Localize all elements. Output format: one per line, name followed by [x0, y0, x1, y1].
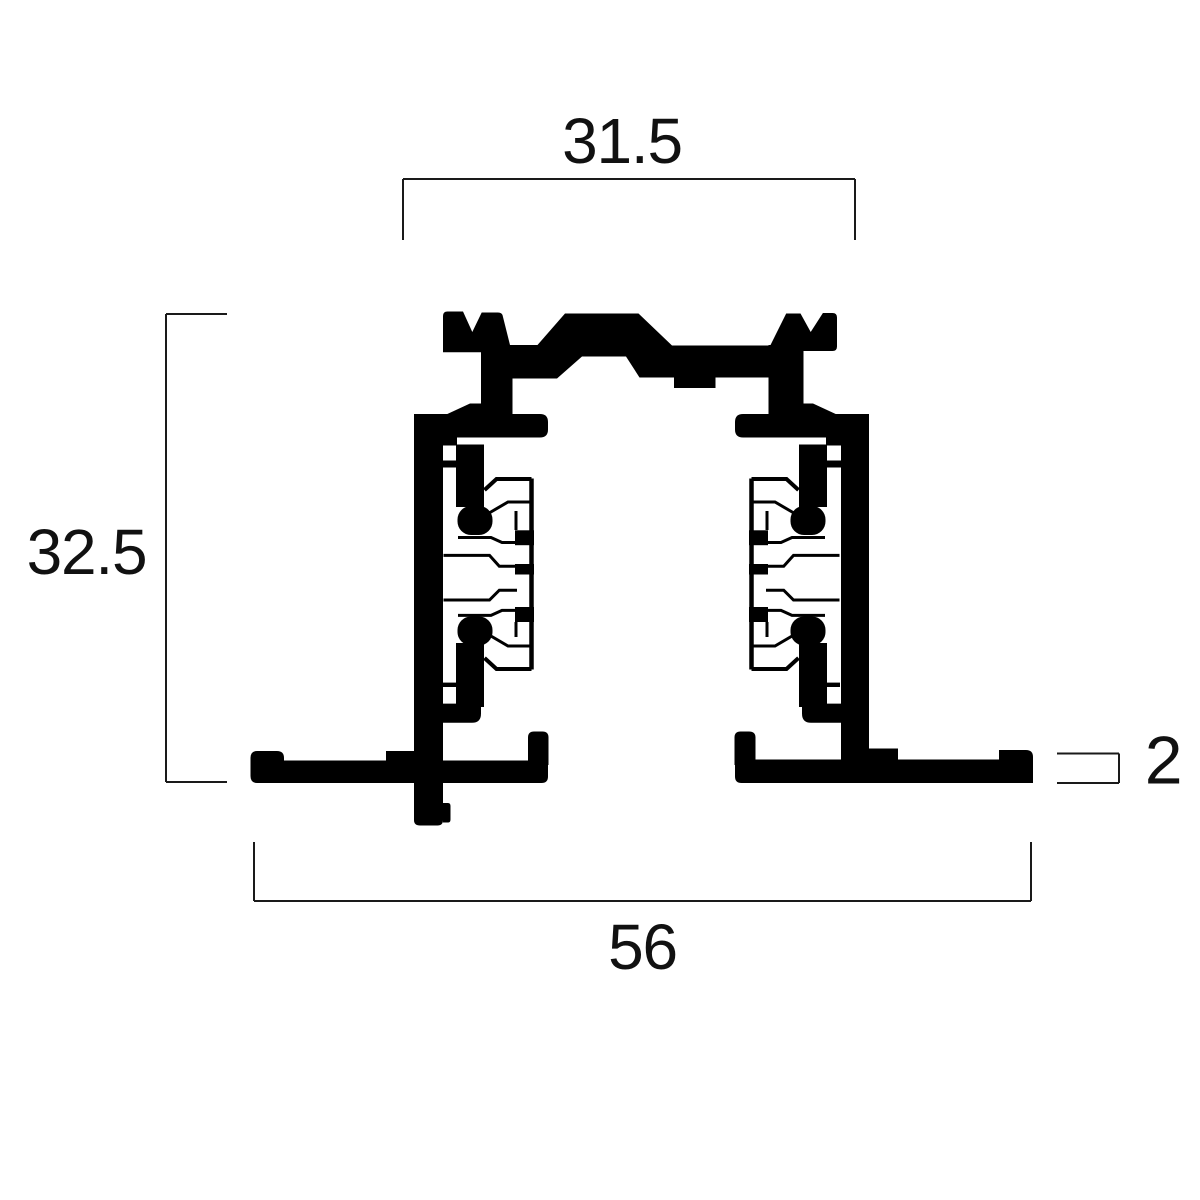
svg-text:56: 56	[608, 911, 677, 983]
svg-text:31.5: 31.5	[562, 105, 682, 177]
svg-text:32.5: 32.5	[27, 516, 147, 588]
svg-text:2: 2	[1145, 723, 1182, 799]
